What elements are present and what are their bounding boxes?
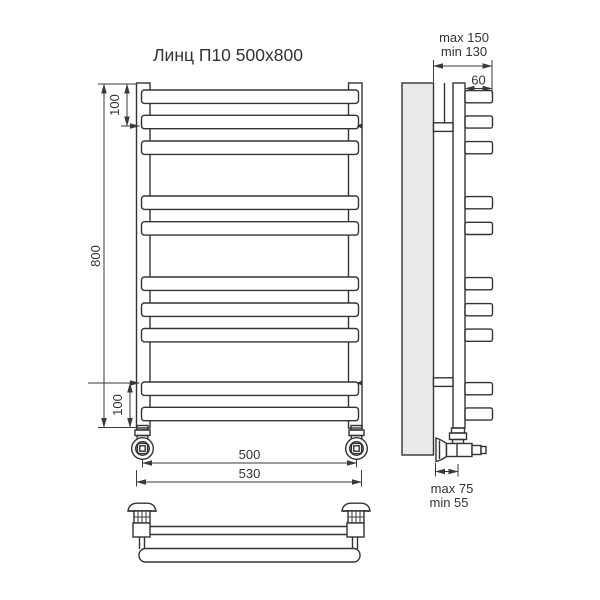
wall-bracket	[434, 378, 454, 387]
technical-drawing-page: Линц П10 500x800	[0, 0, 600, 600]
dim-valve-offset-max-label: max 75	[431, 481, 474, 496]
plan-right-flange	[342, 503, 370, 537]
rung	[142, 382, 359, 395]
rung-profile	[465, 142, 493, 154]
dim-overall-width-label: 530	[239, 466, 261, 481]
rung-profile	[465, 222, 493, 234]
front-rungs	[142, 90, 359, 421]
rung	[142, 303, 359, 316]
side-view	[402, 83, 493, 462]
side-rungs	[465, 91, 493, 421]
dim-height-label: 800	[88, 245, 103, 267]
rung-profile	[465, 116, 493, 128]
wall	[402, 83, 434, 455]
dim-wall-distance-min-label: min 130	[441, 44, 487, 59]
dim-valve-offset-min-label: min 55	[429, 495, 468, 510]
rung	[142, 277, 359, 290]
rung-profile	[465, 408, 493, 420]
front-right-valve	[346, 426, 368, 460]
rung	[142, 329, 359, 342]
wall-bracket	[434, 123, 454, 132]
drawing-title: Линц П10 500x800	[153, 45, 303, 65]
rung	[142, 115, 359, 128]
front-view	[132, 83, 368, 459]
plan-left-flange	[128, 503, 156, 537]
rung	[142, 196, 359, 209]
rung	[142, 407, 359, 420]
rung-profile	[465, 91, 493, 103]
dim-pipe-centers-label: 500	[239, 447, 261, 462]
side-collector	[453, 83, 465, 428]
towel-radiator-drawing: Линц П10 500x800	[0, 0, 600, 600]
dim-rung-depth-label: 60	[471, 73, 485, 88]
rung-profile	[465, 304, 493, 316]
rung-profile	[465, 278, 493, 290]
wall-flange	[436, 438, 447, 462]
rung	[142, 90, 359, 103]
plan-rung-bar	[139, 549, 360, 563]
rung-profile	[465, 329, 493, 341]
dim-top-offset-label: 100	[107, 94, 122, 116]
dim-bottom-offset-label: 100	[110, 394, 125, 416]
rung	[142, 141, 359, 154]
side-valve-assembly	[436, 428, 486, 462]
plan-view	[128, 503, 370, 562]
rung-profile	[465, 197, 493, 209]
front-left-collector	[137, 83, 151, 428]
rung	[142, 222, 359, 235]
rung-profile	[465, 383, 493, 395]
front-right-collector	[349, 83, 363, 428]
front-left-valve	[132, 426, 154, 460]
plan-bracket-block	[133, 523, 150, 537]
dim-wall-distance-max-label: max 150	[439, 30, 489, 45]
plan-bracket-block	[347, 523, 364, 537]
